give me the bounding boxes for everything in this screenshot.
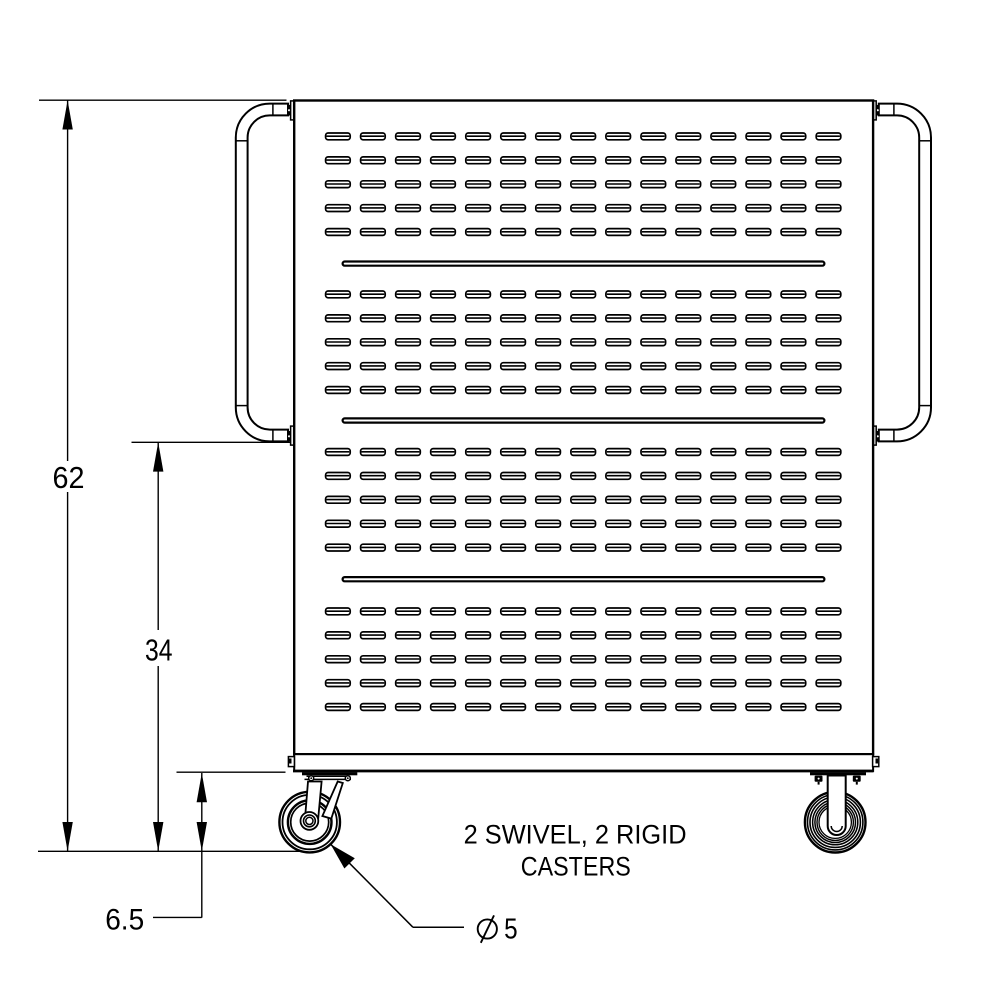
svg-text:5: 5	[504, 914, 518, 946]
svg-text:34: 34	[145, 633, 173, 668]
svg-text:6.5: 6.5	[105, 904, 144, 937]
svg-text:CASTERS: CASTERS	[521, 852, 631, 882]
svg-text:62: 62	[53, 460, 85, 495]
svg-text:2 SWIVEL, 2 RIGID: 2 SWIVEL, 2 RIGID	[464, 819, 687, 849]
